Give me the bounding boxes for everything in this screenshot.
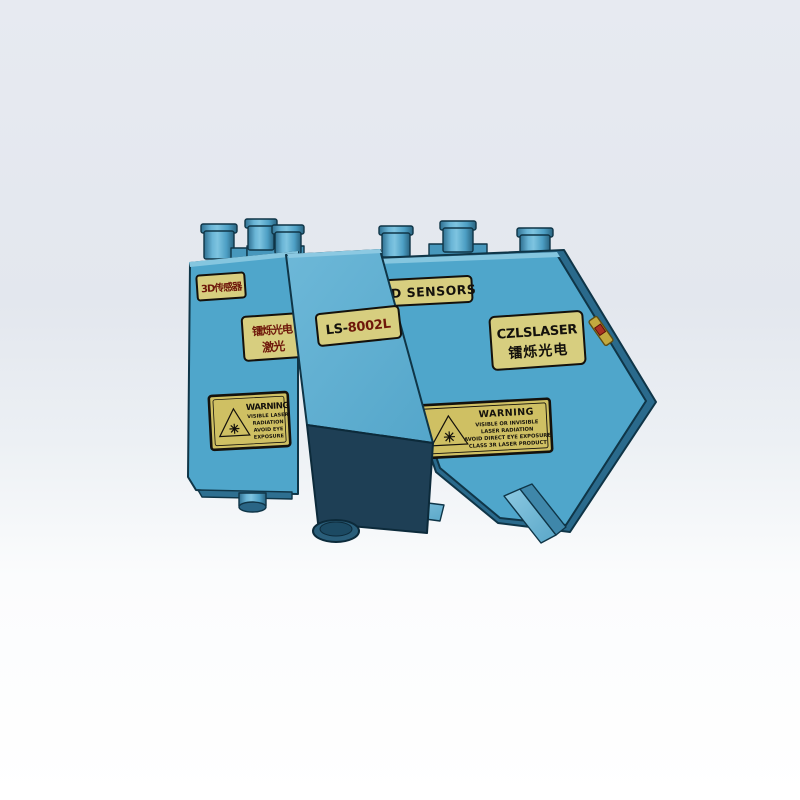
connector-5[interactable]	[440, 221, 476, 252]
connector-2[interactable]	[245, 219, 277, 250]
right-warning-decal: WARNING VISIBLE OR INVISIBLE LASER RADIA…	[419, 399, 553, 459]
left-bottom-connector[interactable]	[239, 493, 266, 512]
connector-4[interactable]	[379, 226, 413, 257]
sensors-decal: 3D SENSORS	[381, 276, 477, 307]
connector-3[interactable]	[272, 225, 304, 254]
model-render: 3D传感器 镭烁光电 激光 WARNING VISIBLE LASER RADI…	[0, 0, 800, 800]
left-decal-line2: 激光	[262, 338, 286, 355]
left-sensor-module[interactable]: 3D传感器 镭烁光电 激光 WARNING VISIBLE LASER RADI…	[188, 251, 303, 512]
left-warning-decal: WARNING VISIBLE LASER RADIATION AVOID EY…	[209, 392, 292, 450]
lens-barrel[interactable]	[313, 520, 359, 542]
left-small-decal: 3D传感器	[196, 272, 246, 300]
left-decal-line1: 镭烁光电	[252, 322, 294, 339]
cad-viewport[interactable]: 3D传感器 镭烁光电 激光 WARNING VISIBLE LASER RADI…	[0, 0, 800, 800]
brand-decal: CZLSLASER 镭烁光电	[489, 311, 585, 370]
middle-module-dark-face[interactable]	[307, 425, 433, 533]
